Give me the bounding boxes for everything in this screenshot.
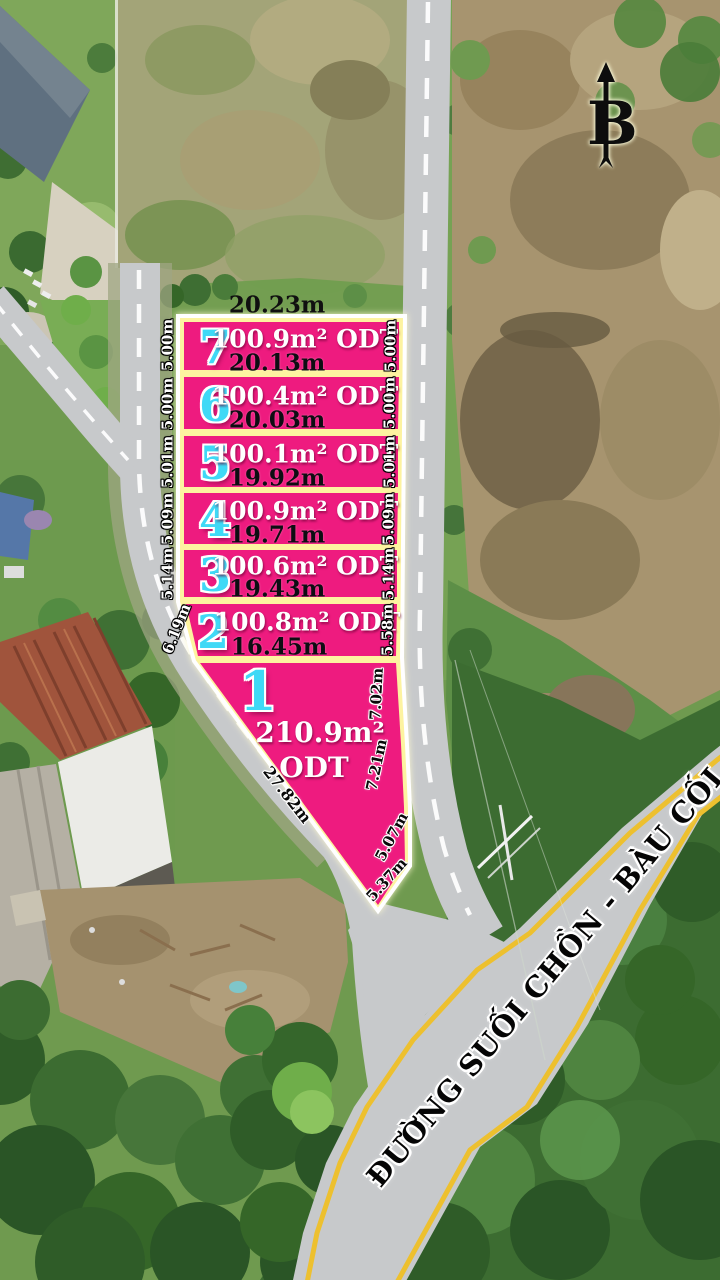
plot-1-number: 1 — [239, 664, 277, 718]
plot-6-frontage-label: 20.03m — [229, 409, 325, 432]
plot-3-left-dim: 5.14m — [161, 548, 176, 600]
plot-5-left-dim: 5.01m — [161, 436, 176, 488]
fence-line — [115, 0, 118, 268]
north-arrow: B — [570, 62, 642, 172]
north-letter: B — [587, 89, 638, 159]
plot-4-left-dim: 5.09m — [161, 493, 176, 545]
plot-5-right-dim: 5.01m — [383, 436, 398, 488]
top-boundary-dimension: 20.23m — [229, 294, 325, 317]
plot-7-area-label: 100.9m² ODT — [212, 327, 398, 352]
plot-3-frontage-label: 19.43m — [229, 578, 325, 601]
plot-7-right-dim: 5.00m — [384, 320, 399, 372]
plot-6-left-dim: 5.00m — [161, 378, 176, 430]
plot-6-right-dim: 5.00m — [383, 377, 398, 429]
plot-1-zoning-label: ODT — [279, 754, 349, 782]
plot-5-frontage-label: 19.92m — [229, 467, 325, 490]
land-plot-aerial-map: 20.23m 7 100.9m² ODT 20.13m 5.00m 5.00m … — [0, 0, 720, 1280]
plot-2-right-dim: 5.58m — [381, 604, 396, 656]
plot-4-area-label: 100.9m² ODT — [212, 499, 398, 524]
plot-2-frontage-label: 16.45m — [231, 636, 327, 659]
plot-7-left-dim: 5.00m — [161, 319, 176, 371]
plot-4-right-dim: 5.09m — [382, 493, 397, 545]
plot-3-right-dim: 5.14m — [382, 548, 397, 600]
plot-4-frontage-label: 19.71m — [229, 524, 325, 547]
plot-1-area-label: 210.9m² — [255, 719, 385, 747]
plot-2-area-label: 100.8m² ODT — [214, 610, 400, 635]
plot-1-right-dim-1: 7.02m — [368, 667, 386, 720]
satellite-backdrop — [0, 0, 720, 1280]
plot-7-frontage-label: 20.13m — [229, 352, 325, 375]
plot-5-area-label: 100.1m² ODT — [212, 442, 398, 467]
plot-6-area-label: 100.4m² ODT — [212, 384, 398, 409]
